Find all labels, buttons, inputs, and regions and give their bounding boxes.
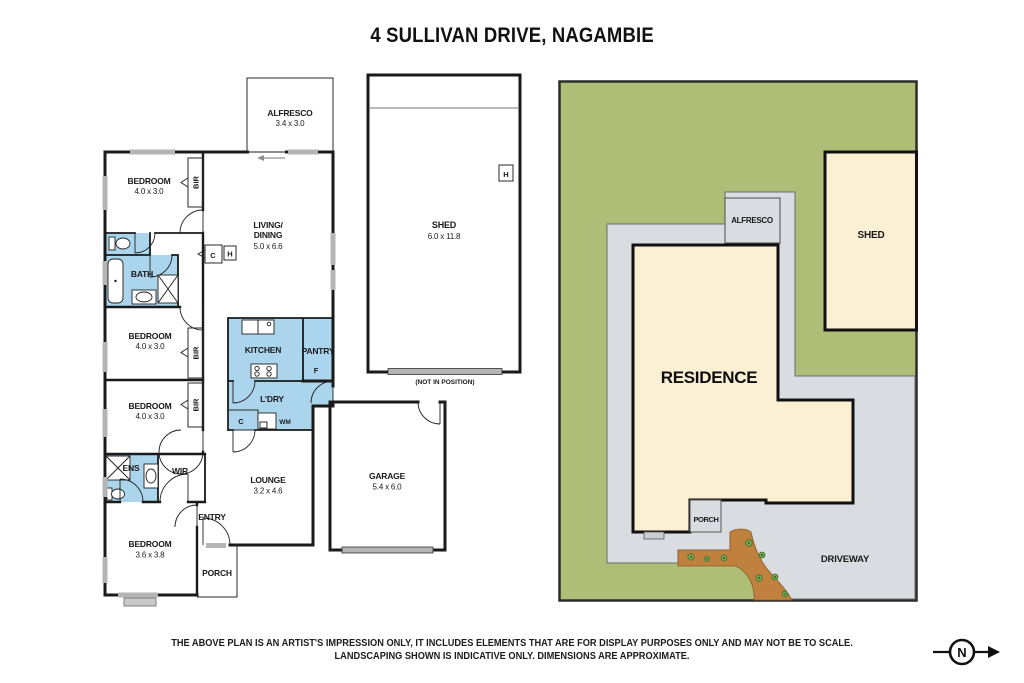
bedroom1-door	[180, 210, 203, 233]
shed-hot-water-label: H	[503, 170, 508, 179]
cooktop-burner	[267, 372, 271, 376]
plant-icon	[704, 556, 709, 561]
garage-rear-door	[418, 402, 440, 424]
bedroom2-dims: 4.0 x 3.0	[136, 342, 166, 351]
cooktop-burner	[255, 366, 259, 370]
shed-roller-door	[388, 369, 502, 375]
bedroom1-label: BEDROOM	[128, 176, 171, 186]
plant-icon	[721, 555, 727, 561]
plant-icon	[746, 540, 753, 547]
bir3-chevron	[181, 400, 188, 409]
lounge-dims: 3.2 x 4.6	[254, 487, 284, 496]
bedroom3-label: BEDROOM	[129, 401, 172, 411]
bir2-chevron	[181, 348, 188, 357]
pantry-label: PANTRY	[302, 346, 335, 356]
window	[103, 409, 108, 437]
exterior-unit	[124, 598, 156, 606]
bedroom3-dims: 4.0 x 3.0	[136, 412, 166, 421]
garage-label: GARAGE	[369, 471, 406, 481]
ens-label: ENS	[123, 463, 140, 473]
shed-label: SHED	[432, 220, 457, 230]
laundry-label: L'DRY	[260, 394, 284, 404]
floor-plan: ALFRESCO 3.4 x 3.0 BEDROOM 4.0 x 3.0 BIR…	[100, 70, 530, 635]
washing-machine-label: WM	[279, 419, 291, 426]
site-doorstep	[644, 532, 664, 539]
bedroom2-label: BEDROOM	[129, 331, 172, 341]
shed-note: (NOT IN POSITION)	[415, 379, 474, 386]
window	[331, 233, 336, 265]
wc-toilet-tank	[109, 237, 115, 250]
plant-icon	[772, 574, 778, 580]
wir-door	[160, 474, 188, 502]
bir3-label: BIR	[192, 398, 201, 412]
alfresco-label: ALFRESCO	[267, 108, 313, 118]
site-driveway-label: DRIVEWAY	[821, 554, 870, 565]
entry-label: ENTRY	[198, 512, 226, 522]
porch-label: PORCH	[202, 568, 232, 578]
wir-label: WIR	[172, 466, 188, 476]
plant-icon	[759, 552, 765, 558]
site-residence-label: RESIDENCE	[661, 368, 758, 387]
alfresco-dims: 3.4 x 3.0	[276, 119, 306, 128]
window	[288, 150, 318, 155]
sliding-door	[249, 149, 285, 161]
bath-label: BATH	[131, 269, 153, 279]
living-label-2: DINING	[254, 230, 283, 240]
disclaimer-line-2: LANDSCAPING SHOWN IS INDICATIVE ONLY. DI…	[61, 650, 962, 663]
bir2-label: BIR	[192, 346, 201, 360]
window	[103, 557, 108, 583]
bedroom4-dims: 3.6 x 3.8	[136, 551, 166, 560]
ens-basin	[146, 469, 156, 483]
fridge-label: F	[314, 366, 319, 375]
bir1-chevron	[181, 178, 188, 187]
plant-icon	[688, 554, 694, 560]
entry-front-door	[203, 518, 230, 545]
kitchen-tap	[267, 322, 271, 326]
ens-wir-walls	[158, 454, 205, 502]
disclaimer: THE ABOVE PLAN IS AN ARTIST'S IMPRESSION…	[0, 637, 1024, 663]
bedroom4-label: BEDROOM	[129, 539, 172, 549]
cooktop	[251, 364, 277, 378]
window	[103, 176, 108, 210]
garage-roller-door	[342, 547, 433, 553]
disclaimer-line-1: THE ABOVE PLAN IS AN ARTIST'S IMPRESSION…	[61, 637, 962, 650]
plant-icon	[782, 591, 788, 597]
lounge-label: LOUNGE	[250, 475, 286, 485]
sliding-door-arrow-head	[257, 155, 264, 161]
plant-icon	[756, 575, 762, 581]
window	[118, 593, 158, 598]
cooktop-burner	[255, 372, 259, 376]
site-porch-label: PORCH	[693, 515, 718, 524]
bedroom2-door	[180, 307, 203, 330]
garage-dims: 5.4 x 6.0	[373, 483, 403, 492]
kitchen-label: KITCHEN	[245, 345, 281, 355]
bathtub-drain	[114, 280, 116, 282]
bir1-label: BIR	[192, 175, 201, 189]
bedroom4-door	[175, 505, 197, 527]
hall-cupboard-label: C	[210, 251, 216, 260]
site-alfresco-label: ALFRESCO	[731, 216, 773, 225]
cooktop-burner	[267, 366, 271, 370]
page-title-text: 4 SULLIVAN DRIVE, NAGAMBIE	[370, 24, 654, 48]
wc-toilet-bowl	[116, 238, 130, 249]
bath-basin	[136, 292, 152, 302]
lounge-door	[233, 430, 255, 452]
window	[103, 261, 108, 285]
hot-water-label: H	[227, 250, 232, 259]
front-door-threshold	[206, 543, 226, 548]
living-dims: 5.0 x 6.6	[254, 242, 284, 251]
window	[103, 342, 108, 372]
window	[130, 150, 175, 155]
site-plan: ALFRESCO SHED RESIDENCE PORCH DRIVEWAY	[558, 80, 918, 602]
page-title: 4 SULLIVAN DRIVE, NAGAMBIE	[0, 24, 1024, 48]
laundry-cupboard-label: C	[238, 417, 244, 426]
ens-toilet-bowl	[112, 489, 125, 499]
living-label-1: LIVING/	[253, 220, 283, 230]
shed-dims: 6.0 x 11.8	[428, 232, 461, 241]
bedroom1-dims: 4.0 x 3.0	[135, 187, 165, 196]
floorplan-page: 4 SULLIVAN DRIVE, NAGAMBIE	[0, 0, 1024, 683]
site-shed-label: SHED	[858, 230, 885, 241]
site-shed	[825, 152, 917, 330]
window	[331, 270, 336, 290]
window	[103, 477, 108, 497]
